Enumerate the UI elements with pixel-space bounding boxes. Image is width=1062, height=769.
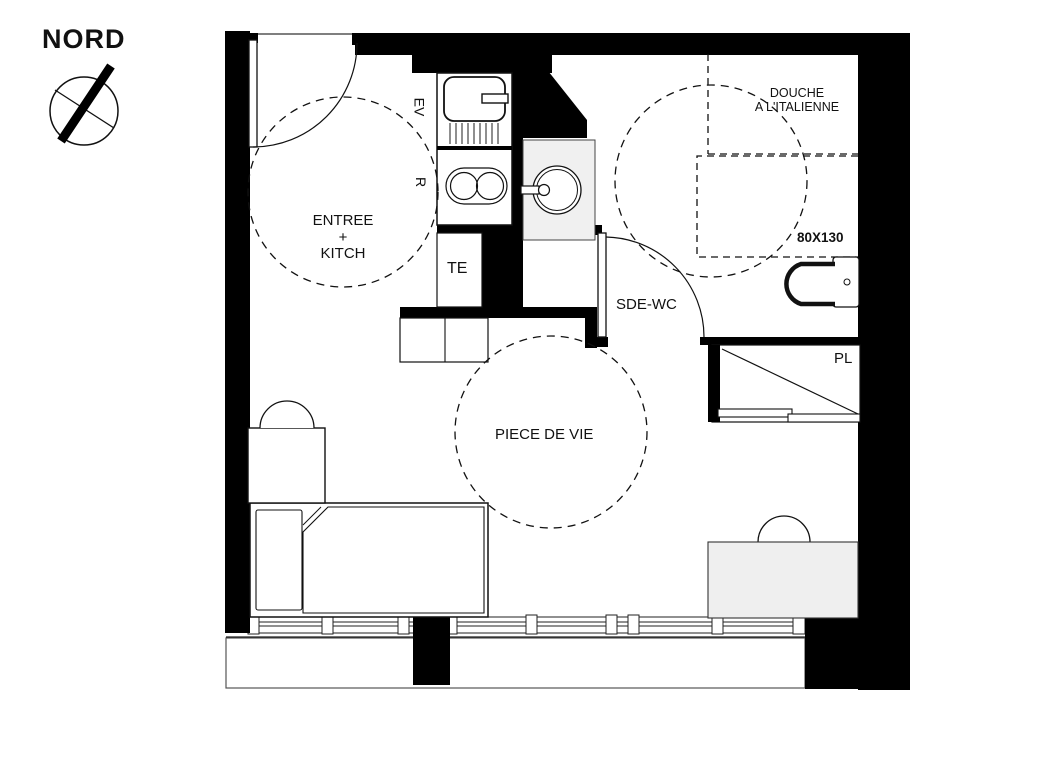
entrance-door [249, 40, 357, 147]
shower-label: DOUCHE A L'ITALIENNE [737, 87, 857, 114]
shower-label-line2: A L'ITALIENNE [737, 101, 857, 115]
entry-kitchen-label: ENTREE + KITCH [281, 213, 405, 263]
entry-kitchen-label-line2: + [281, 230, 405, 247]
technical-shaft [523, 57, 587, 138]
bathroom-door [598, 233, 704, 337]
sink-label: EV [411, 98, 427, 117]
floor-plan: NORD ENTREE + KITCH EV R TE SDE-WC DOUCH… [0, 0, 1062, 769]
toilet [786, 257, 859, 307]
armchair-left [248, 401, 325, 503]
desk-right [708, 516, 858, 618]
entry-kitchen-label-line1: ENTREE [281, 213, 405, 230]
column [413, 617, 450, 685]
chair-back [260, 401, 314, 428]
balcony [226, 638, 805, 688]
sliding-door-right [788, 414, 860, 422]
pillow [256, 510, 302, 610]
shower-label-line1: DOUCHE [737, 87, 857, 101]
kitchen-cabinet [400, 318, 488, 362]
toilet-bowl [786, 264, 835, 304]
north-label: NORD [42, 24, 126, 55]
sink-faucet [482, 94, 508, 103]
cooktop-label: R [413, 177, 429, 187]
blanket [303, 507, 484, 613]
transfer-area-size-label: 80X130 [797, 230, 844, 245]
washbasin-faucet [521, 186, 539, 194]
compass-icon [50, 66, 118, 145]
floor-plan-drawing [0, 0, 1062, 769]
sliding-door-left [718, 409, 792, 417]
bathroom-door-swing-arc [606, 237, 704, 337]
entry-kitchen-label-line3: KITCH [281, 246, 405, 263]
bathroom-label: SDE-WC [616, 296, 677, 313]
closet-label: PL [834, 350, 852, 367]
kitchen-unit [437, 73, 512, 225]
electrical-panel-label: TE [447, 260, 467, 278]
bed [250, 503, 488, 617]
living-room-label: PIECE DE VIE [495, 426, 593, 443]
entrance-door-swing-arc [253, 43, 357, 147]
chair-back [758, 516, 810, 542]
shower-zone [697, 54, 858, 257]
washbasin [521, 140, 595, 240]
